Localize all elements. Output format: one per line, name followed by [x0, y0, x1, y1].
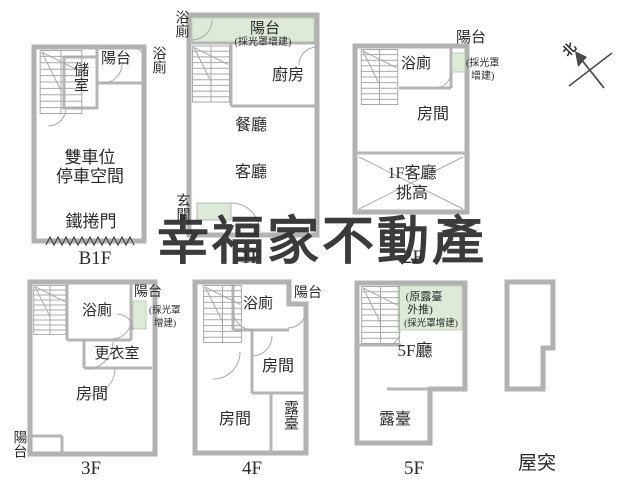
- b1f-parking-label-line2: 停車空間: [56, 167, 124, 186]
- floorplan-canvas: 陽台 儲室 浴廁 雙車位 停車空間 鐵捲門 浴廁 陽台 (採光罩增建) 廚房 餐…: [0, 0, 640, 480]
- f1-name-label: 1F: [241, 247, 261, 268]
- f2-name-label: 2F: [403, 247, 423, 268]
- f2-void-label-line2: 挑高: [396, 184, 428, 202]
- floor-plan-4f: 浴廁 陽台 房間 房間 露臺: [195, 282, 322, 453]
- f2-balcony-label: 陽台: [456, 29, 486, 46]
- f3-balcony-top-label: 陽台: [134, 284, 162, 300]
- f5-name-label: 5F: [404, 458, 424, 479]
- f4-bathroom-label: 浴廁: [243, 294, 273, 312]
- f2-void-label-line1: 1F客廳: [388, 163, 437, 182]
- floor-plan-5f: (原露臺 外推) (採光罩增建) 5F廳 露臺: [357, 283, 465, 443]
- f3-closet-label: 更衣室: [94, 345, 139, 362]
- f1-balcony-label: 陽台: [250, 20, 280, 37]
- floor-plan-1f: 浴廁 陽台 (採光罩增建) 廚房 餐廳 客廳 玄關: [174, 10, 318, 235]
- roof-outline: [507, 282, 553, 389]
- floor-plan-3f: 浴廁 陽台 (採光罩 增建) 更衣室 房間 陽台: [12, 282, 181, 458]
- compass: 北: [559, 39, 612, 88]
- f5-note-line1: (原露臺: [406, 289, 443, 303]
- f3-balcony-area: [133, 301, 146, 329]
- f2-note-line1: (採光罩: [466, 56, 499, 69]
- floor-plan-b1f: 陽台 儲室 浴廁 雙車位 停車空間 鐵捲門: [34, 46, 167, 245]
- f3-note-line1: (採光罩: [149, 304, 181, 316]
- f3-room-label: 房間: [76, 385, 108, 403]
- f2-bathroom-label: 浴廁: [401, 54, 431, 72]
- f3-name-label: 3F: [81, 458, 101, 479]
- f2-balcony-area: [452, 53, 465, 72]
- f3-note-line2: 增建): [154, 317, 176, 329]
- agency-watermark: 幸福家不動產: [157, 213, 487, 271]
- f4-room-lower-label: 房間: [219, 410, 251, 428]
- f2-room-label: 房間: [417, 105, 449, 123]
- f5-note-line3: (採光罩增建): [404, 317, 458, 329]
- b1f-name-label: B1F: [79, 248, 112, 269]
- b1f-balcony-label: 陽台: [101, 50, 131, 67]
- b1f-storage-label: 儲室: [72, 62, 89, 92]
- f1-dining-label: 餐廳: [235, 115, 267, 134]
- f2-note-line2: 增建): [471, 69, 494, 82]
- floor-plan-roof: [507, 282, 553, 389]
- floor-plan-2f: 陽台 浴廁 (採光罩 增建) 房間 1F客廳 挑高: [355, 29, 499, 212]
- f1-bathroom-label: 浴廁: [174, 10, 190, 38]
- f5-terrace-label: 露臺: [379, 410, 411, 428]
- f4-balcony-label: 陽台: [294, 285, 322, 301]
- f3-bathroom-label: 浴廁: [82, 301, 112, 319]
- b1f-parking-label-line1: 雙車位: [65, 148, 116, 167]
- f1-balcony-note: (採光罩增建): [235, 35, 292, 48]
- f1-living-label: 客廳: [235, 162, 267, 181]
- compass-cross-line: [569, 53, 612, 86]
- f5-hall-label: 5F廳: [398, 341, 433, 360]
- b1f-bathroom-label: 浴廁: [151, 46, 167, 74]
- f4-room-upper-label: 房間: [262, 357, 294, 375]
- b1f-rolling-door-label: 鐵捲門: [66, 212, 117, 231]
- f1-kitchen-label: 廚房: [272, 65, 304, 84]
- f5-note-line2: 外推): [407, 302, 433, 316]
- f3-balcony-bottom-label: 陽台: [12, 430, 27, 458]
- f4-terrace-label: 露臺: [282, 400, 299, 430]
- roof-name-label: 屋突: [518, 452, 556, 474]
- f4-name-label: 4F: [242, 458, 262, 479]
